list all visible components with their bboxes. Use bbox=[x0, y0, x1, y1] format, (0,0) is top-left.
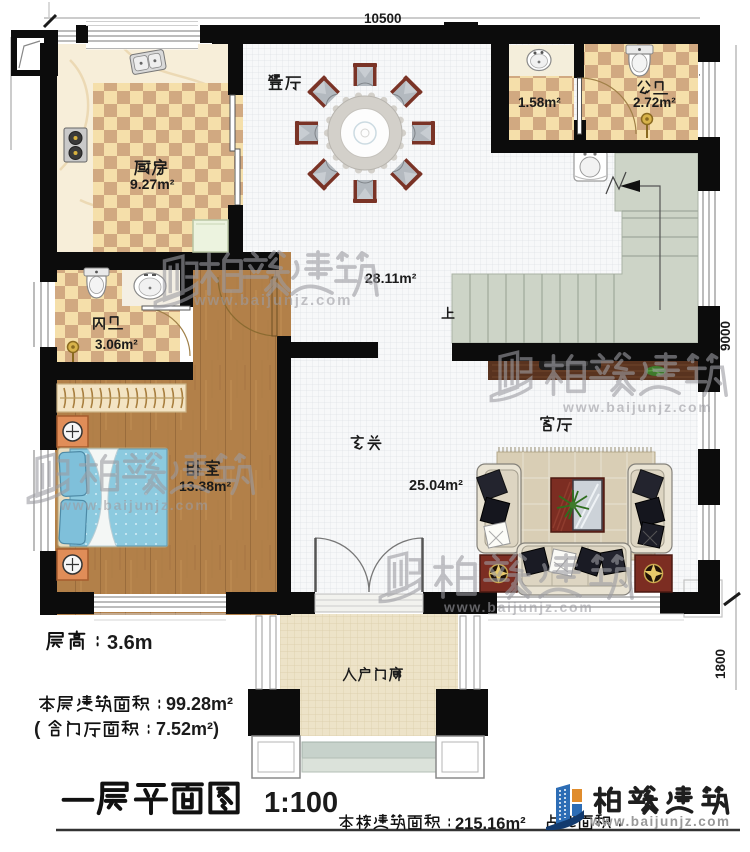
svg-text:3.06m²: 3.06m² bbox=[95, 337, 138, 352]
svg-text:9000: 9000 bbox=[718, 321, 733, 351]
svg-text:25.04m²: 25.04m² bbox=[409, 478, 463, 494]
svg-text:1:100: 1:100 bbox=[264, 787, 338, 819]
svg-text:www.baijunjz.com: www.baijunjz.com bbox=[193, 292, 352, 309]
svg-text:10500: 10500 bbox=[364, 11, 402, 26]
svg-text:www.baijunjz.com: www.baijunjz.com bbox=[562, 399, 713, 415]
svg-text:2.72m²: 2.72m² bbox=[633, 95, 676, 110]
svg-text:1800: 1800 bbox=[713, 649, 728, 679]
svg-text:www.baijunjz.com: www.baijunjz.com bbox=[59, 497, 210, 513]
svg-text:(: ( bbox=[34, 719, 41, 740]
svg-text:7.52m²): 7.52m²) bbox=[156, 719, 219, 739]
svg-text:www.baijunjz.com: www.baijunjz.com bbox=[443, 599, 594, 615]
svg-text:215.16m²: 215.16m² bbox=[455, 815, 526, 833]
svg-text:3.6m: 3.6m bbox=[107, 632, 153, 654]
svg-text:1.58m²: 1.58m² bbox=[518, 95, 561, 110]
svg-text:99.28m²: 99.28m² bbox=[166, 694, 233, 714]
svg-text:9.27m²: 9.27m² bbox=[130, 176, 175, 192]
svg-text:www.baijunjz.com: www.baijunjz.com bbox=[589, 814, 731, 829]
